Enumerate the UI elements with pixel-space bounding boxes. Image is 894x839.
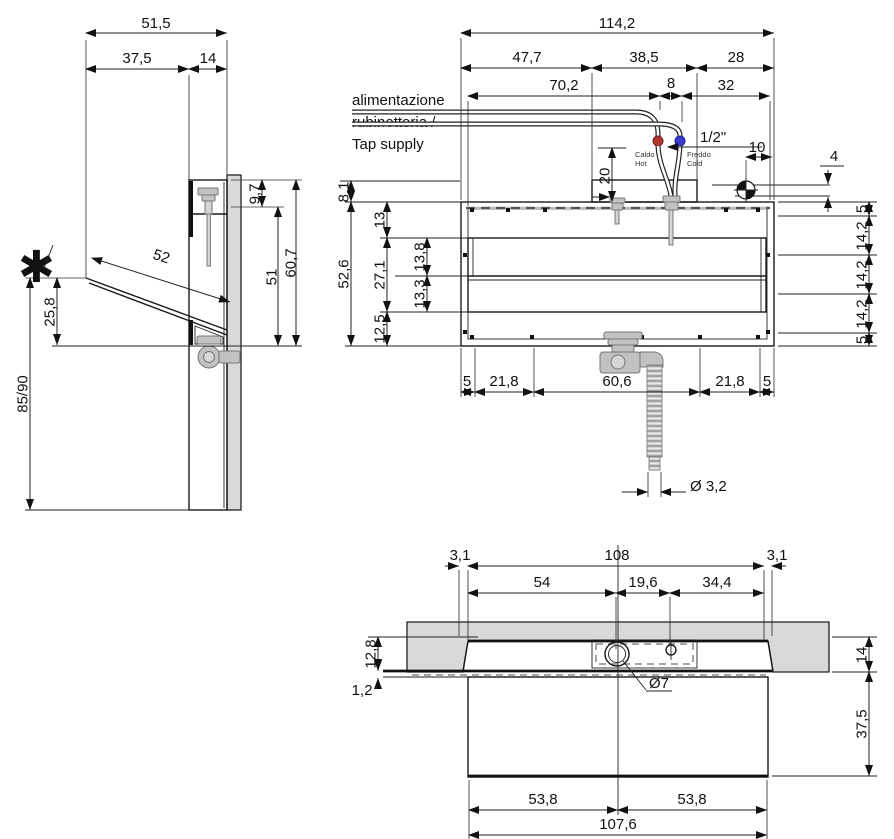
dim-top-offset-front: 8,1 bbox=[335, 182, 352, 203]
bottom-view-geometry bbox=[368, 545, 829, 815]
dim-right-col-4: 5 bbox=[853, 336, 870, 344]
cold-label-it: Freddo bbox=[687, 150, 711, 159]
dim-rim-height: 13 bbox=[371, 212, 388, 229]
front-trap bbox=[600, 332, 663, 470]
tap-supply-line3: Tap supply bbox=[352, 136, 424, 153]
dim-apron-half-right: 53,8 bbox=[677, 791, 706, 808]
tap-assembly bbox=[198, 188, 218, 266]
dim-drain-to-hole: 19,6 bbox=[628, 574, 657, 591]
dim-hot-offset: 70,2 bbox=[549, 77, 578, 94]
bottom-view-dimensions: 3,1 108 3,1 54 19,6 34,4 Ø7 12,8 1,2 bbox=[352, 547, 877, 839]
dim-bottom-row-2: 60,6 bbox=[602, 373, 631, 390]
dim-bottom-row-1: 21,8 bbox=[489, 373, 518, 390]
dim-cutout-width: 108 bbox=[604, 547, 629, 564]
dim-inner-total: 27,1 bbox=[371, 260, 388, 289]
dim-overall-width: 114,2 bbox=[599, 15, 635, 32]
dim-slope-length: 52 bbox=[151, 246, 172, 267]
supply-tubes: Caldo Hot Freddo Cold bbox=[352, 112, 711, 196]
cold-water-dot bbox=[675, 136, 685, 146]
basin-slope-top bbox=[86, 278, 227, 330]
dim-apron-height: 37,5 bbox=[853, 709, 870, 738]
dim-cabinet-depth: 14 bbox=[200, 50, 217, 67]
wall-section bbox=[227, 175, 241, 510]
dim-bottom-height: 12,5 bbox=[371, 314, 388, 343]
drain-hose bbox=[647, 365, 662, 457]
front-view: alimentazione rubinetteria / Tap supply bbox=[335, 15, 877, 497]
dim-right-col-1: 14,2 bbox=[853, 221, 870, 250]
hot-water-dot bbox=[653, 136, 663, 146]
dim-hole-offset-v: 4 bbox=[830, 148, 838, 165]
tap-supply-line1: alimentazione bbox=[352, 92, 445, 109]
side-view-dimensions: 51,5 37,5 14 9,7 51 60,7 52 25,8 85/90 ✱ bbox=[14, 15, 302, 510]
dim-riser-height: 20 bbox=[596, 168, 613, 185]
technical-drawing: 51,5 37,5 14 9,7 51 60,7 52 25,8 85/90 ✱ bbox=[0, 0, 894, 839]
dim-hole-diameter: Ø7 bbox=[649, 675, 669, 692]
hot-label-it: Caldo bbox=[635, 150, 655, 159]
dim-basin-overhang: 37,5 bbox=[122, 50, 151, 67]
side-view-geometry bbox=[25, 175, 302, 510]
dim-bottom-row-0: 5 bbox=[463, 373, 471, 390]
cabinet-top-bracket bbox=[189, 181, 193, 237]
dim-apron-half-left: 53,8 bbox=[528, 791, 557, 808]
dim-overall-height: 52,6 bbox=[335, 259, 352, 288]
connection-size-label: 1/2" bbox=[700, 129, 726, 146]
dim-hole-offset-h: 10 bbox=[749, 139, 766, 156]
dim-drain-offset: 54 bbox=[534, 574, 551, 591]
dim-right-col-2: 14,2 bbox=[853, 260, 870, 289]
basin-opening bbox=[468, 238, 766, 312]
dim-top-offset: 9,7 bbox=[246, 184, 263, 205]
dim-apron-width: 107,6 bbox=[599, 816, 637, 833]
side-view: 51,5 37,5 14 9,7 51 60,7 52 25,8 85/90 ✱ bbox=[14, 15, 302, 510]
dim-left-span: 47,7 bbox=[512, 49, 541, 66]
front-view-dimensions: 114,2 47,7 38,5 28 70,2 8 32 1/2" 20 10 bbox=[335, 15, 877, 497]
dim-inner-lower: 13,3 bbox=[411, 279, 428, 308]
dim-inner-height: 51 bbox=[263, 269, 280, 286]
left-fitting bbox=[592, 197, 625, 224]
dim-section-height: 14 bbox=[853, 647, 870, 664]
dim-front-height: 60,7 bbox=[282, 248, 299, 277]
dim-edge-left: 3,1 bbox=[450, 547, 471, 564]
dim-bottom-row-4: 5 bbox=[763, 373, 771, 390]
dim-mid-span: 38,5 bbox=[629, 49, 658, 66]
dim-right-span: 28 bbox=[728, 49, 745, 66]
mounting-points bbox=[463, 208, 770, 339]
dim-overall-depth: 51,5 bbox=[141, 15, 170, 32]
dim-hole-to-edge: 34,4 bbox=[702, 574, 731, 591]
dim-lip: 1,2 bbox=[352, 682, 373, 699]
dim-bottom-row-3: 21,8 bbox=[715, 373, 744, 390]
drain-hose-tip bbox=[649, 457, 660, 470]
basin-slope-bottom bbox=[89, 283, 227, 335]
dim-edge-right: 3,1 bbox=[767, 547, 788, 564]
dim-right-col-3: 14,2 bbox=[853, 299, 870, 328]
dim-hot-cold-gap: 8 bbox=[667, 75, 675, 92]
dim-inner-upper: 13,8 bbox=[411, 242, 428, 271]
footnote-asterisk: ✱ bbox=[18, 243, 55, 292]
bottom-view: 3,1 108 3,1 54 19,6 34,4 Ø7 12,8 1,2 bbox=[352, 545, 877, 839]
dim-front-edge-height: 25,8 bbox=[41, 297, 58, 326]
dim-right-col-0: 5 bbox=[853, 205, 870, 213]
dim-mounting-height: 85/90 bbox=[14, 375, 31, 413]
drawing-canvas: 51,5 37,5 14 9,7 51 60,7 52 25,8 85/90 ✱ bbox=[0, 0, 894, 839]
frame-inner bbox=[468, 209, 767, 339]
hot-label-en: Hot bbox=[635, 159, 648, 168]
datum-symbol bbox=[712, 178, 830, 202]
dim-recess-depth: 12,8 bbox=[362, 639, 379, 668]
dim-cold-to-edge: 32 bbox=[718, 77, 735, 94]
cold-label-en: Cold bbox=[687, 159, 702, 168]
dim-drain-hose-diameter: Ø 3,2 bbox=[690, 478, 727, 495]
